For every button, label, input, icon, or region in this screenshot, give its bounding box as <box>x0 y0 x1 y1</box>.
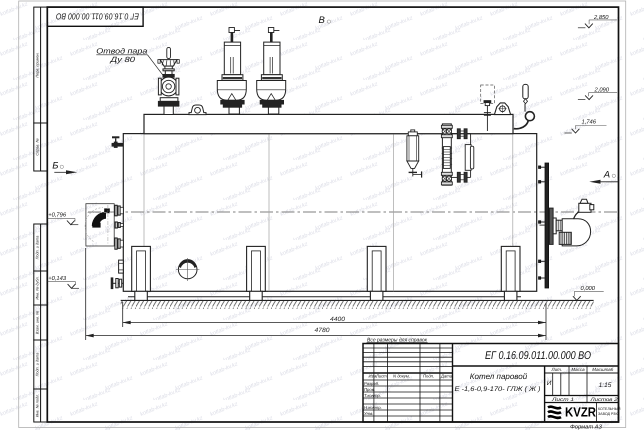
svg-text:Н.контр.: Н.контр. <box>364 405 382 410</box>
svg-text:Масштаб: Масштаб <box>592 367 613 372</box>
svg-text:Формат А3: Формат А3 <box>570 424 602 430</box>
svg-text:+0,143: +0,143 <box>48 275 67 282</box>
svg-text:Справ. №: Справ. № <box>36 138 40 155</box>
svg-text:Подп. и дата: Подп. и дата <box>36 353 40 377</box>
svg-text:Инв. № дубл.: Инв. № дубл. <box>36 276 40 299</box>
svg-text:ЕГ 0.16.09.011.00.000 ВО: ЕГ 0.16.09.011.00.000 ВО <box>485 350 591 362</box>
svg-text:Подп. и дата: Подп. и дата <box>36 236 40 260</box>
svg-text:Разраб.: Разраб. <box>364 381 379 386</box>
svg-text:Пров.: Пров. <box>364 387 375 392</box>
svg-text:И: И <box>547 380 552 387</box>
svg-text:0,000: 0,000 <box>581 285 596 292</box>
svg-text:4780: 4780 <box>315 327 331 334</box>
svg-text:N докум.: N докум. <box>393 374 410 379</box>
svg-text:Котел паровой: Котел паровой <box>470 372 528 381</box>
svg-text:Утв.: Утв. <box>364 411 374 416</box>
svg-text:ЕГ 0.16.09.011.00.000 ВО: ЕГ 0.16.09.011.00.000 ВО <box>56 12 139 22</box>
svg-text:Листов 2: Листов 2 <box>589 397 617 403</box>
svg-text:Дата: Дата <box>440 374 453 379</box>
svg-text:Взам. инв. №: Взам. инв. № <box>36 311 40 334</box>
svg-text:КОТЕЛЬНЫЙ: КОТЕЛЬНЫЙ <box>598 406 621 411</box>
svg-text:Т.контр.: Т.контр. <box>364 393 381 398</box>
svg-text:Подп.: Подп. <box>423 374 434 379</box>
svg-text:+0,796: +0,796 <box>48 212 67 219</box>
svg-text:Перв. примен.: Перв. примен. <box>36 52 40 77</box>
svg-text:Лит.: Лит. <box>551 367 563 372</box>
svg-text:ЗАВОД РЗК: ЗАВОД РЗК <box>598 412 618 416</box>
svg-text:Лист 1: Лист 1 <box>551 397 575 403</box>
svg-text:Б: Б <box>52 160 58 171</box>
svg-text:В: В <box>319 15 326 26</box>
svg-text:Масса: Масса <box>571 367 585 372</box>
svg-text:Ду 80: Ду 80 <box>109 55 136 64</box>
svg-text:Лист: Лист <box>375 374 387 379</box>
svg-text:1,746: 1,746 <box>582 119 597 126</box>
svg-text:Инв. № подл.: Инв. № подл. <box>36 394 40 418</box>
svg-text:Е -1,6-0,9-170- ГЛЖ ( Ж ): Е -1,6-0,9-170- ГЛЖ ( Ж ) <box>455 386 541 393</box>
svg-text:А: А <box>603 169 610 180</box>
svg-text:4400: 4400 <box>330 316 346 323</box>
svg-text:KVZR: KVZR <box>565 405 596 420</box>
svg-text:1:15: 1:15 <box>599 382 612 389</box>
